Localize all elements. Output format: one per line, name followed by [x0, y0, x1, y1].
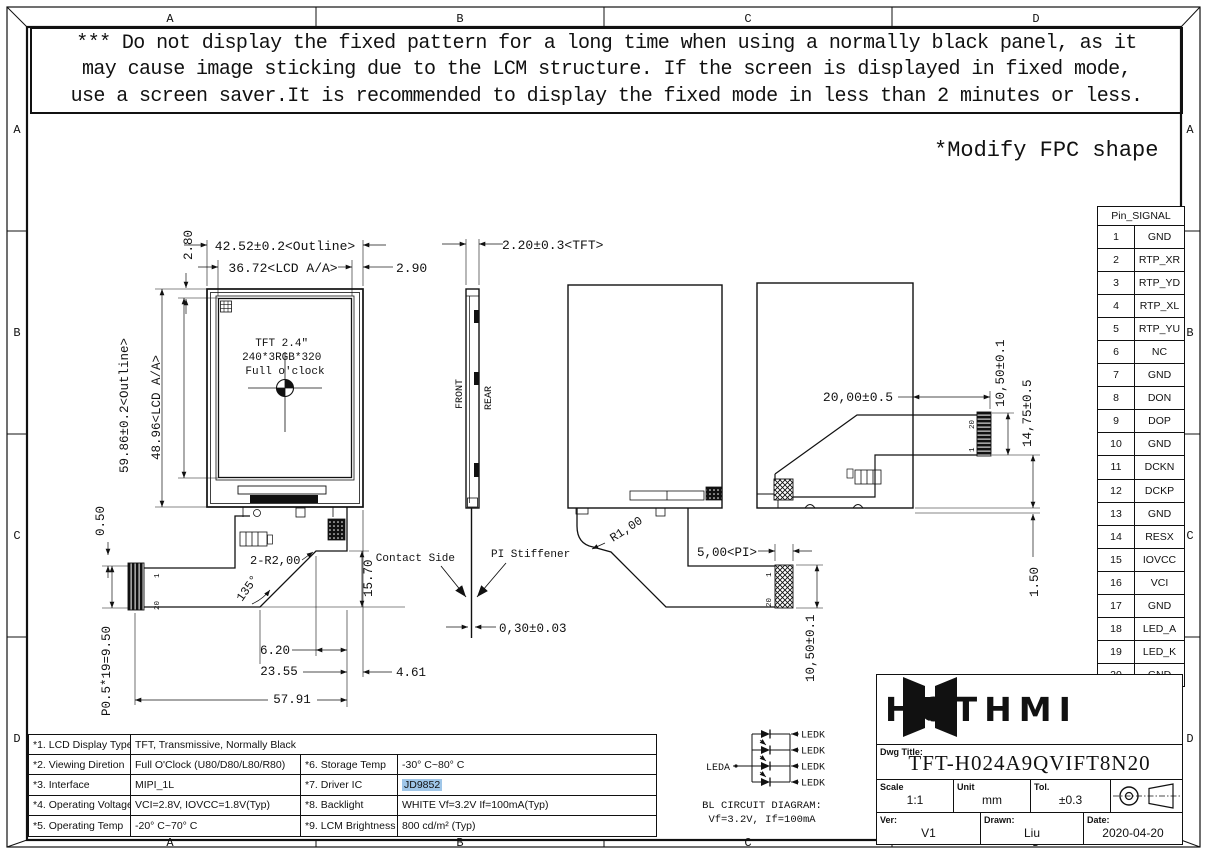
projection-symbol-icon	[1111, 780, 1182, 812]
dim-a: 6.20	[260, 644, 290, 658]
dim-tail-height: 15.70	[362, 559, 376, 597]
dim-pin-offset: 0.50	[94, 506, 108, 536]
dim-bend-angle: 135°	[234, 573, 262, 605]
tolerance-cell: Tol. ±0.3	[1031, 780, 1111, 812]
pin-row: 16VCI	[1098, 572, 1184, 595]
dim-pin-pitch: P0.5*19=9.50	[100, 626, 114, 716]
zone-row-label: D	[13, 732, 20, 746]
pin-signal-table: Pin_SIGNAL 1GND 2RTP_XR 3RTP_YD 4RTP_XL …	[1097, 206, 1185, 687]
pin-row: 12DCKP	[1098, 480, 1184, 503]
pi-stiffener-label: PI Stiffener	[491, 549, 570, 561]
pin1-label: 1	[154, 573, 162, 578]
dim-right-margin: 2.90	[396, 261, 427, 276]
spec-label: *8. Backlight	[301, 796, 398, 816]
title-block: HOTHMI Dwg Title: TFT-H024A9QVIFT8N20 Sc…	[876, 674, 1183, 845]
side-view: 2.20±0.3<TFT> FRONT REAR Contact Side PI…	[376, 238, 604, 638]
pin20-label: 20	[154, 600, 162, 610]
zone-row-label: B	[13, 326, 20, 340]
spec-label: *9. LCM Brightness	[301, 816, 398, 836]
pin-row: 17GND	[1098, 595, 1184, 618]
pin-row: 5RTP_YU	[1098, 318, 1184, 341]
driver-ic-highlight: JD9852	[402, 779, 442, 791]
zone-row-label: A	[13, 123, 21, 137]
alignment-mark-icon	[221, 301, 232, 312]
rear-view-folded: 20 1 20,00±0.5 10,50±0.1 14,75±0.5 1.50	[757, 283, 1042, 597]
scale-value: 1:1	[877, 793, 953, 807]
pin1-label: 1	[766, 572, 774, 577]
pin-row: 3RTP_YD	[1098, 272, 1184, 295]
dim-fpc-thickness: 0,30±0.03	[499, 622, 567, 636]
dwg-title: TFT-H024A9QVIFT8N20	[877, 751, 1182, 776]
spec-value: -20° C~70° C	[131, 816, 301, 836]
leda-label: LEDA	[706, 763, 730, 774]
warning-line: *** Do not display the fixed pattern for…	[32, 31, 1181, 58]
contact-side-label: Contact Side	[376, 553, 455, 565]
spec-value-driver-ic: JD9852	[398, 775, 656, 795]
pin-row: 4RTP_XL	[1098, 295, 1184, 318]
led-diode-icon	[761, 778, 770, 786]
version-cell: Ver: V1	[877, 813, 981, 845]
pin-row: 8DON	[1098, 387, 1184, 410]
pin-table-header: Pin_SIGNAL	[1098, 207, 1184, 226]
zone-row-label: C	[13, 529, 20, 543]
zone-row-label: B	[1186, 326, 1193, 340]
dim-total-width: 57.91	[273, 693, 311, 707]
fpc-modify-note: *Modify FPC shape	[934, 138, 1158, 163]
ledk-label: LEDK	[801, 747, 825, 758]
drawn-value: Liu	[981, 826, 1083, 840]
pin20-label: 20	[766, 597, 774, 607]
spec-label: *2. Viewing Diretion	[29, 755, 131, 775]
dim-pi: 5,00<PI>	[697, 546, 757, 560]
bl-circuit-subtitle: Vf=3.2V, If=100mA	[708, 814, 816, 826]
zone-row-label: C	[1186, 529, 1193, 543]
dwg-title-row: Dwg Title: TFT-H024A9QVIFT8N20	[877, 745, 1182, 780]
front-view: TFT 2.4″ 240*3RGB*320 Full o'clock 1 20	[94, 230, 427, 716]
zone-col-label: D	[1032, 12, 1039, 26]
unit-value: mm	[954, 793, 1030, 807]
logo-row: HOTHMI	[877, 675, 1182, 745]
svg-text:TFT 2.4″ 240*3RGB*320: TFT 2.4″ 240*3RGB*320 Full o'clock	[242, 338, 328, 378]
warning-line: use a screen saver.It is recommended to …	[32, 84, 1181, 111]
spec-value: WHITE Vf=3.2V If=100mA(Typ)	[398, 796, 656, 816]
pin-row: 13GND	[1098, 503, 1184, 526]
dim-outline-height: 59.86±0.2<Outline>	[118, 338, 132, 473]
spec-label: *1. LCD Display Type	[29, 735, 131, 755]
pin-row: 19LED_K	[1098, 641, 1184, 664]
led-diode-icon	[761, 746, 770, 754]
pin-row: 14RESX	[1098, 526, 1184, 549]
panel-viewing-label: Full o'clock	[245, 366, 325, 378]
dim-aa-height: 48.96<LCD A/A>	[150, 355, 164, 460]
panel-size-label: TFT 2.4″	[255, 338, 308, 350]
dim-fold-length: 20,00±0.5	[823, 390, 893, 405]
spec-value: VCI=2.8V, IOVCC=1.8V(Typ)	[131, 796, 301, 816]
dim-bottom-margin: 1.50	[1028, 567, 1042, 597]
pin-row: 9DOP	[1098, 410, 1184, 433]
pin-row: 18LED_A	[1098, 618, 1184, 641]
pin-row: 7GND	[1098, 364, 1184, 387]
pin-row: 2RTP_XR	[1098, 249, 1184, 272]
zone-col-label: A	[166, 12, 174, 26]
dim-corner-radius: 2-R2,00	[250, 554, 300, 568]
spec-value: -30° C~80° C	[398, 755, 656, 775]
pin-row: 1GND	[1098, 226, 1184, 249]
spec-table: *1. LCD Display Type TFT, Transmissive, …	[28, 734, 657, 837]
spec-label: *7. Driver IC	[301, 775, 398, 795]
ledk-label: LEDK	[801, 763, 825, 774]
scale-row: Scale 1:1 Unit mm Tol. ±0.3	[877, 780, 1182, 813]
dim-tft-thickness: 2.20±0.3<TFT>	[502, 238, 604, 253]
spec-label: *6. Storage Temp	[301, 755, 398, 775]
projection-cell	[1111, 780, 1182, 812]
dim-b: 23.55	[260, 665, 298, 679]
version-value: V1	[877, 826, 980, 840]
dim-c: 4.61	[396, 666, 426, 680]
drawing-sheet: A B C D A B C D A B C D A B C D	[0, 0, 1207, 854]
bl-circuit-title: BL CIRCUIT DIAGRAM:	[702, 800, 822, 812]
pin1-label: 1	[969, 447, 977, 452]
zone-row-label: A	[1186, 123, 1194, 137]
panel-resolution-label: 240*3RGB*320	[242, 352, 321, 364]
zone-col-label: A	[166, 836, 174, 850]
zone-row-label: D	[1186, 732, 1193, 746]
spec-value: 800 cd/m² (Typ)	[398, 816, 656, 836]
drawn-cell: Drawn: Liu	[981, 813, 1084, 845]
scale-cell: Scale 1:1	[877, 780, 954, 812]
spec-value: MIPI_1L	[131, 775, 301, 795]
dim-fpc-radius: R1,00	[608, 514, 646, 545]
unit-cell: Unit mm	[954, 780, 1031, 812]
pin-row: 6NC	[1098, 341, 1184, 364]
spec-label: *4. Operating Voltage	[29, 796, 131, 816]
date-cell: Date: 2020-04-20	[1084, 813, 1182, 845]
warning-line: may cause image sticking due to the LCM …	[32, 57, 1181, 84]
spec-label: *5. Operating Temp	[29, 816, 131, 836]
dim-aa-width: 36.72<LCD A/A>	[228, 261, 337, 276]
ledk-label: LEDK	[801, 731, 825, 742]
pin-row: 10GND	[1098, 433, 1184, 456]
front-face-label: FRONT	[455, 379, 466, 409]
dim-connector-width: 10,50±0.1	[994, 339, 1008, 407]
zone-col-label: C	[744, 836, 751, 850]
warning-box: *** Do not display the fixed pattern for…	[30, 27, 1183, 114]
spec-value: TFT, Transmissive, Normally Black	[131, 735, 656, 755]
pin-row: 15IOVCC	[1098, 549, 1184, 572]
dim-connector-offset: 14,75±0.5	[1021, 379, 1035, 447]
pin20-label: 20	[969, 419, 977, 429]
bl-circuit: LEDA LEDK LEDK LEDK LEDK BL CIRCUIT DIAG…	[702, 730, 825, 827]
zone-col-label: B	[456, 12, 463, 26]
dim-top-margin: 2.80	[182, 230, 196, 260]
fpc-connector	[775, 565, 793, 608]
fpc-connector	[977, 412, 991, 456]
led-diode-icon	[761, 730, 770, 738]
spec-label: *3. Interface	[29, 775, 131, 795]
fpc-connector	[128, 563, 144, 610]
hothmi-logo-icon	[899, 675, 961, 739]
pin-row: 11DCKN	[1098, 456, 1184, 479]
zone-col-label: C	[744, 12, 751, 26]
rear-face-label: REAR	[484, 386, 495, 410]
led-diode-icon	[761, 762, 770, 770]
spec-value: Full O'Clock (U80/D80/L80/R80)	[131, 755, 301, 775]
tolerance-value: ±0.3	[1031, 793, 1110, 807]
zone-col-label: B	[456, 836, 463, 850]
dim-connector-width: 10,50±0.1	[804, 614, 818, 682]
version-row: Ver: V1 Drawn: Liu Date: 2020-04-20	[877, 813, 1182, 845]
dim-outline-width: 42.52±0.2<Outline>	[215, 239, 356, 254]
date-value: 2020-04-20	[1084, 826, 1182, 840]
ledk-label: LEDK	[801, 779, 825, 790]
